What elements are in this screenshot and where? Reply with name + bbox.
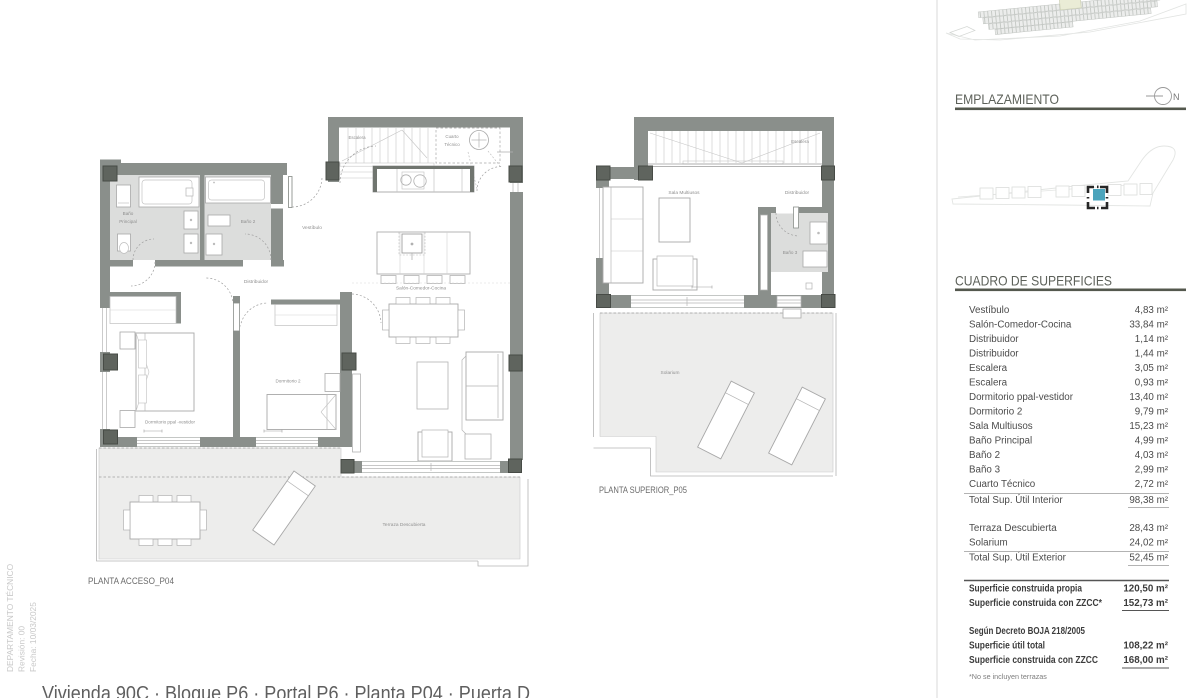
svg-text:1,14 m²: 1,14 m² [1135,334,1169,345]
svg-text:Cuarto: Cuarto [445,134,459,139]
svg-text:N: N [1173,92,1180,102]
svg-text:Vestíbulo: Vestíbulo [969,305,1010,316]
svg-text:Distribuidor: Distribuidor [244,279,269,285]
svg-text:Superficie útil total: Superficie útil total [969,641,1045,652]
svg-text:Cuarto Técnico: Cuarto Técnico [969,479,1036,490]
svg-text:Revisión: 00: Revisión: 00 [17,626,27,672]
svg-text:9,79 m²: 9,79 m² [1135,407,1169,418]
svg-text:Terraza Descubierta: Terraza Descubierta [383,522,426,528]
svg-text:Distribuidor: Distribuidor [969,334,1019,345]
svg-text:PLANTA ACCESO_P04: PLANTA ACCESO_P04 [88,576,174,587]
svg-text:Dormitorio 2: Dormitorio 2 [275,379,300,384]
svg-text:Baño Principal: Baño Principal [969,436,1032,447]
svg-text:*No se incluyen terrazas: *No se incluyen terrazas [969,672,1047,681]
svg-text:4,99 m²: 4,99 m² [1135,436,1169,447]
svg-text:EMPLAZAMIENTO: EMPLAZAMIENTO [955,91,1059,107]
svg-text:Dormitorio ppal-vestidor: Dormitorio ppal-vestidor [969,392,1074,403]
svg-text:PLANTA SUPERIOR_P05: PLANTA SUPERIOR_P05 [599,485,687,496]
svg-text:Técnico: Técnico [444,142,460,147]
svg-text:Total Sup. Útil Exterior: Total Sup. Útil Exterior [969,553,1067,564]
svg-text:Solarium: Solarium [661,370,680,376]
svg-text:33,84 m²: 33,84 m² [1129,320,1168,331]
svg-text:Sala Multiusos: Sala Multiusos [668,190,700,196]
svg-text:Total Sup. Útil Interior: Total Sup. Útil Interior [969,495,1063,506]
svg-text:0,93 m²: 0,93 m² [1135,378,1169,389]
svg-text:Terraza Descubierta: Terraza Descubierta [969,523,1057,534]
svg-text:4,03 m²: 4,03 m² [1135,450,1169,461]
svg-text:Dormitorio ppal -vestidor: Dormitorio ppal -vestidor [145,420,196,425]
svg-text:108,22 m²: 108,22 m² [1123,641,1168,652]
svg-text:52,45 m²: 52,45 m² [1129,553,1168,564]
svg-text:Distribuidor: Distribuidor [969,349,1019,360]
svg-text:Baño 3: Baño 3 [969,465,1001,476]
svg-text:24,02 m²: 24,02 m² [1129,538,1168,549]
svg-text:28,43 m²: 28,43 m² [1129,523,1168,534]
svg-text:4,83 m²: 4,83 m² [1135,305,1169,316]
svg-text:Escalera: Escalera [348,135,366,140]
svg-text:Superficie construida propia: Superficie construida propia [969,584,1082,595]
svg-text:Sala Multiusos: Sala Multiusos [969,421,1033,432]
svg-text:Vestíbulo: Vestíbulo [302,225,322,231]
svg-text:Solarium: Solarium [969,538,1008,549]
svg-text:Distribuidor: Distribuidor [785,190,810,196]
svg-text:Vivienda 90C · Bloque P6 · Por: Vivienda 90C · Bloque P6 · Portal P6 · P… [42,683,530,698]
svg-text:168,00 m²: 168,00 m² [1123,655,1168,666]
svg-text:Superficie construida con ZZCC: Superficie construida con ZZCC* [969,598,1102,609]
svg-text:152,73 m²: 152,73 m² [1123,598,1168,609]
svg-text:Dormitorio 2: Dormitorio 2 [969,407,1022,418]
svg-text:2,99 m²: 2,99 m² [1135,465,1169,476]
svg-text:3,05 m²: 3,05 m² [1135,363,1169,374]
svg-text:Baño 2: Baño 2 [241,219,256,224]
svg-text:Escalera: Escalera [969,378,1008,389]
svg-text:98,38 m²: 98,38 m² [1129,495,1168,506]
svg-text:Baño 3: Baño 3 [783,250,798,255]
svg-text:Salón-Comedor-Cocina: Salón-Comedor-Cocina [969,320,1072,331]
svg-text:Baño: Baño [123,211,134,216]
svg-text:Principal: Principal [119,219,137,224]
svg-text:120,50 m²: 120,50 m² [1123,584,1168,595]
svg-text:Fecha: 10/03/2025: Fecha: 10/03/2025 [28,602,38,672]
svg-text:CUADRO DE SUPERFICIES: CUADRO DE SUPERFICIES [955,273,1112,289]
svg-text:DEPARTAMENTO TÉCNICO: DEPARTAMENTO TÉCNICO [5,563,15,672]
svg-text:Escalera: Escalera [791,139,809,144]
svg-text:15,23 m²: 15,23 m² [1129,421,1168,432]
svg-text:Baño 2: Baño 2 [969,450,1000,461]
svg-text:Escalera: Escalera [969,363,1008,374]
svg-text:Salón-Comedor-Cocina: Salón-Comedor-Cocina [396,286,446,292]
svg-text:Según Decreto BOJA 218/2005: Según Decreto BOJA 218/2005 [969,626,1085,637]
svg-text:Superficie construida con ZZCC: Superficie construida con ZZCC [969,655,1098,666]
svg-text:1,44 m²: 1,44 m² [1135,349,1169,360]
svg-text:13,40 m²: 13,40 m² [1129,392,1168,403]
svg-text:2,72 m²: 2,72 m² [1135,479,1169,490]
